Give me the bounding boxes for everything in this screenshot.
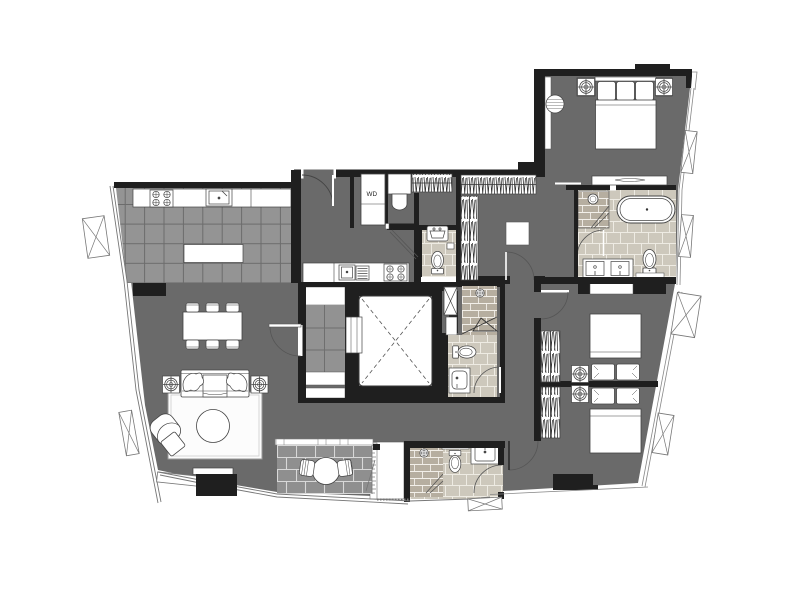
svg-text:WD: WD [367, 191, 378, 198]
